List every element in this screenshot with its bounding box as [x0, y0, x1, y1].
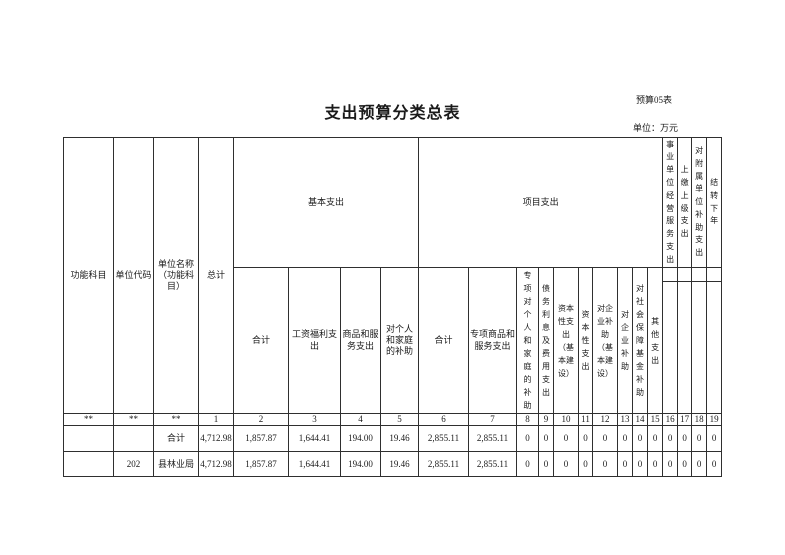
header-unit-code: 单位代码 [114, 138, 154, 414]
spacer-cell [678, 282, 692, 414]
cell-value: 0 [517, 426, 539, 452]
header-capital-expenditure: 资本性支出 [579, 268, 593, 414]
data-row-forestry-bureau: 202 县林业局 4,712.98 1,857.87 1,644.41 194.… [64, 452, 722, 477]
cell-value: 0 [692, 426, 707, 452]
colnum-cell: 12 [593, 414, 618, 426]
colnum-cell: 4 [341, 414, 381, 426]
colnum-cell: 19 [707, 414, 722, 426]
header-debt-interest-fees: 债务利息及费用支出 [539, 268, 554, 414]
header-subsidy-to-affiliated-units: 对附属单位补助支出 [692, 138, 707, 268]
colnum-cell: ** [64, 414, 114, 426]
cell-unit-code [114, 426, 154, 452]
spacer-cell [692, 268, 707, 282]
spacer-cell [678, 268, 692, 282]
page-title: 支出预算分类总表 [63, 99, 722, 123]
colnum-cell: ** [114, 414, 154, 426]
header-carry-forward-next-year: 结转下年 [707, 138, 722, 268]
cell-value: 0 [618, 426, 633, 452]
cell-value: 194.00 [341, 426, 381, 452]
cell-value: 0 [554, 452, 579, 477]
colnum-cell: 14 [633, 414, 648, 426]
colnum-cell: ** [154, 414, 199, 426]
cell-value: 0 [648, 426, 663, 452]
cell-value: 0 [554, 426, 579, 452]
cell-value: 0 [618, 452, 633, 477]
cell-value: 0 [539, 452, 554, 477]
cell-value: 194.00 [341, 452, 381, 477]
cell-value: 0 [678, 452, 692, 477]
cell-value: 0 [517, 452, 539, 477]
header-grand-total: 总计 [199, 138, 234, 414]
header-business-unit-operating-service: 事业单位经营服务支出 [663, 138, 678, 268]
colnum-cell: 18 [692, 414, 707, 426]
cell-value: 0 [593, 426, 618, 452]
header-other-expenditure: 其他支出 [648, 268, 663, 414]
colnum-cell: 13 [618, 414, 633, 426]
cell-value: 0 [663, 452, 678, 477]
cell-value: 4,712.98 [199, 426, 234, 452]
cell-value: 0 [678, 426, 692, 452]
cell-value: 0 [648, 452, 663, 477]
spacer-cell [707, 268, 722, 282]
header-individual-family-subsidy: 对个人和家庭的补助 [381, 268, 419, 414]
cell-unit-name: 县林业局 [154, 452, 199, 477]
cell-value: 2,855.11 [469, 426, 517, 452]
cell-value: 1,857.87 [234, 452, 289, 477]
colnum-cell: 10 [554, 414, 579, 426]
colnum-cell: 9 [539, 414, 554, 426]
cell-value: 0 [579, 452, 593, 477]
cell-value: 0 [633, 452, 648, 477]
cell-value: 4,712.98 [199, 452, 234, 477]
header-unit-name: 单位名称（功能科目） [154, 138, 199, 414]
cell-value: 2,855.11 [419, 452, 469, 477]
header-social-security-fund-subsidy: 对社会保障基金补助 [633, 268, 648, 414]
header-paid-to-higher-level: 上缴上级支出 [678, 138, 692, 268]
header-project-subtotal: 合计 [419, 268, 469, 414]
cell-value: 0 [539, 426, 554, 452]
colnum-cell: 6 [419, 414, 469, 426]
colnum-cell: 7 [469, 414, 517, 426]
cell-value: 1,857.87 [234, 426, 289, 452]
column-number-row: ** ** ** 1 2 3 4 5 6 7 8 9 10 11 12 13 1… [64, 414, 722, 426]
colnum-cell: 2 [234, 414, 289, 426]
spacer-cell [692, 282, 707, 414]
cell-function-subject [64, 426, 114, 452]
cell-value: 0 [633, 426, 648, 452]
cell-unit-code: 202 [114, 452, 154, 477]
cell-value: 0 [579, 426, 593, 452]
cell-value: 2,855.11 [419, 426, 469, 452]
colnum-cell: 1 [199, 414, 234, 426]
colnum-cell: 15 [648, 414, 663, 426]
cell-unit-name: 合计 [154, 426, 199, 452]
budget-table: 功能科目 单位代码 单位名称（功能科目） 总计 基本支出 项目支出 事业单位经营… [63, 137, 722, 477]
data-row-total: 合计 4,712.98 1,857.87 1,644.41 194.00 19.… [64, 426, 722, 452]
cell-value: 0 [707, 426, 722, 452]
cell-value: 19.46 [381, 426, 419, 452]
header-row-groups: 功能科目 单位代码 单位名称（功能科目） 总计 基本支出 项目支出 事业单位经营… [64, 138, 722, 268]
cell-value: 0 [707, 452, 722, 477]
header-special-goods-services: 专项商品和服务支出 [469, 268, 517, 414]
colnum-cell: 8 [517, 414, 539, 426]
cell-value: 1,644.41 [289, 426, 341, 452]
cell-value: 0 [692, 452, 707, 477]
spacer-cell [707, 282, 722, 414]
colnum-cell: 5 [381, 414, 419, 426]
cell-value: 0 [593, 452, 618, 477]
header-goods-services: 商品和服务支出 [341, 268, 381, 414]
colnum-cell: 3 [289, 414, 341, 426]
header-special-individual-family-subsidy: 专项对个人和家庭的补助 [517, 268, 539, 414]
colnum-cell: 11 [579, 414, 593, 426]
cell-function-subject [64, 452, 114, 477]
header-enterprise-subsidy-capital-construction: 对企业补助（基本建设） [593, 268, 618, 414]
spacer-cell [663, 268, 678, 282]
colnum-cell: 17 [678, 414, 692, 426]
header-project-expenditure-group: 项目支出 [419, 138, 663, 268]
header-basic-subtotal: 合计 [234, 268, 289, 414]
page: { "page": { "sheet_label": "预算05表", "tit… [0, 0, 785, 555]
spacer-cell [663, 282, 678, 414]
header-wages-welfare: 工资福利支出 [289, 268, 341, 414]
header-function-subject: 功能科目 [64, 138, 114, 414]
cell-value: 19.46 [381, 452, 419, 477]
cell-value: 0 [663, 426, 678, 452]
unit-label: 单位：万元 [0, 121, 678, 134]
header-enterprise-subsidy: 对企业补助 [618, 268, 633, 414]
cell-value: 2,855.11 [469, 452, 517, 477]
header-basic-expenditure-group: 基本支出 [234, 138, 419, 268]
header-capital-expenditure-capital-construction: 资本性支出（基本建设） [554, 268, 579, 414]
cell-value: 1,644.41 [289, 452, 341, 477]
colnum-cell: 16 [663, 414, 678, 426]
